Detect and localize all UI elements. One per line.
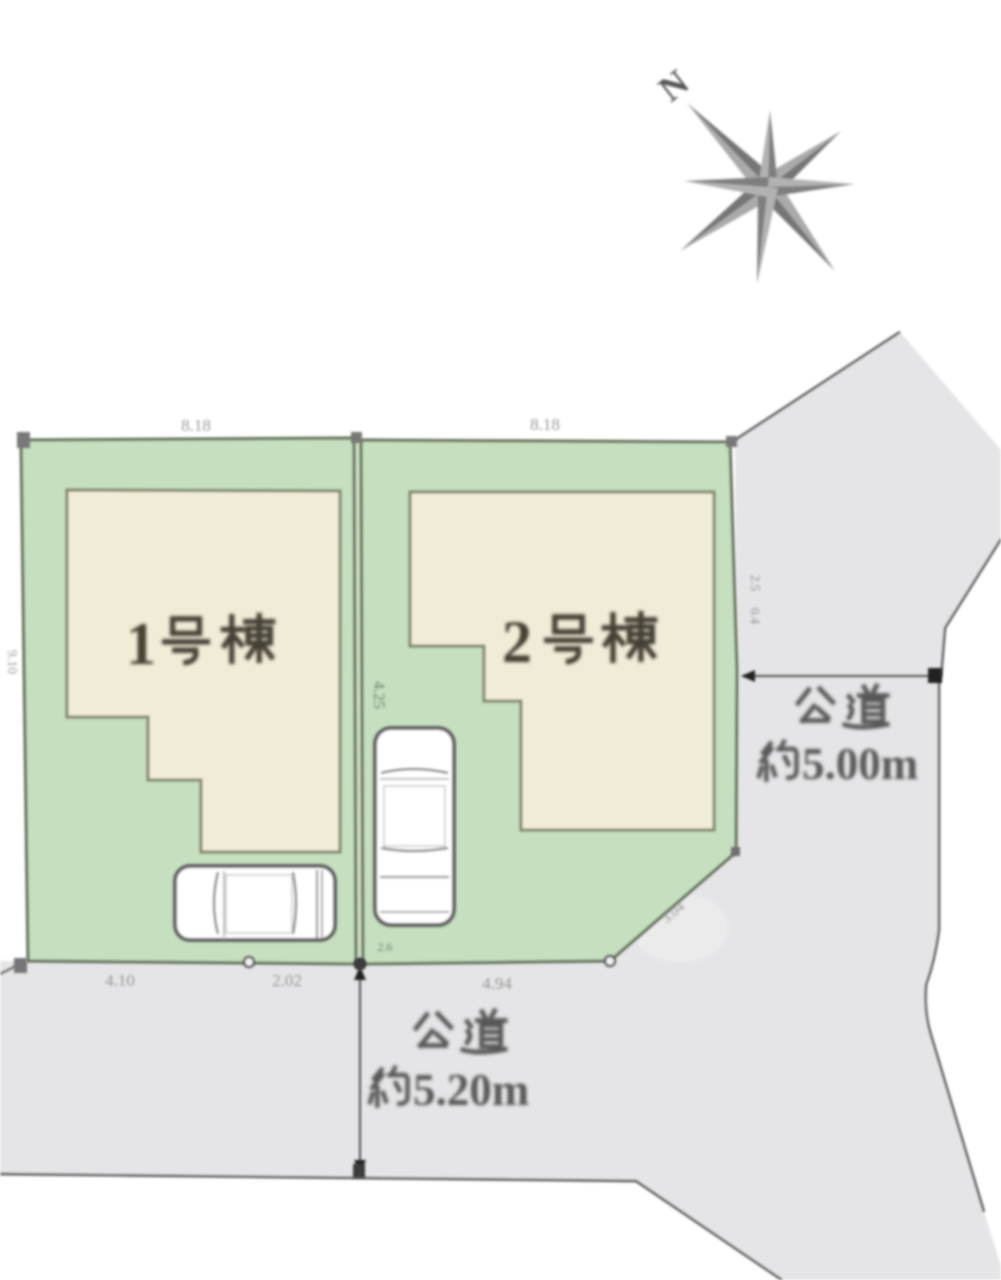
svg-text:5.00m: 5.00m (802, 739, 918, 789)
svg-text:8.18: 8.18 (181, 416, 211, 435)
svg-text:2: 2 (502, 609, 532, 675)
svg-text:8.18: 8.18 (530, 415, 560, 434)
svg-text:2.02: 2.02 (272, 971, 302, 990)
svg-text:2.6: 2.6 (378, 940, 393, 954)
svg-text:0.4: 0.4 (748, 608, 763, 625)
svg-text:N: N (651, 62, 696, 110)
svg-text:2.5: 2.5 (748, 575, 763, 591)
svg-text:5.20m: 5.20m (413, 1065, 529, 1115)
svg-text:1: 1 (126, 611, 156, 677)
svg-text:4.94: 4.94 (482, 974, 512, 993)
svg-text:4.10: 4.10 (105, 971, 135, 990)
svg-text:9.10: 9.10 (4, 650, 19, 675)
svg-text:4.25: 4.25 (370, 681, 387, 709)
